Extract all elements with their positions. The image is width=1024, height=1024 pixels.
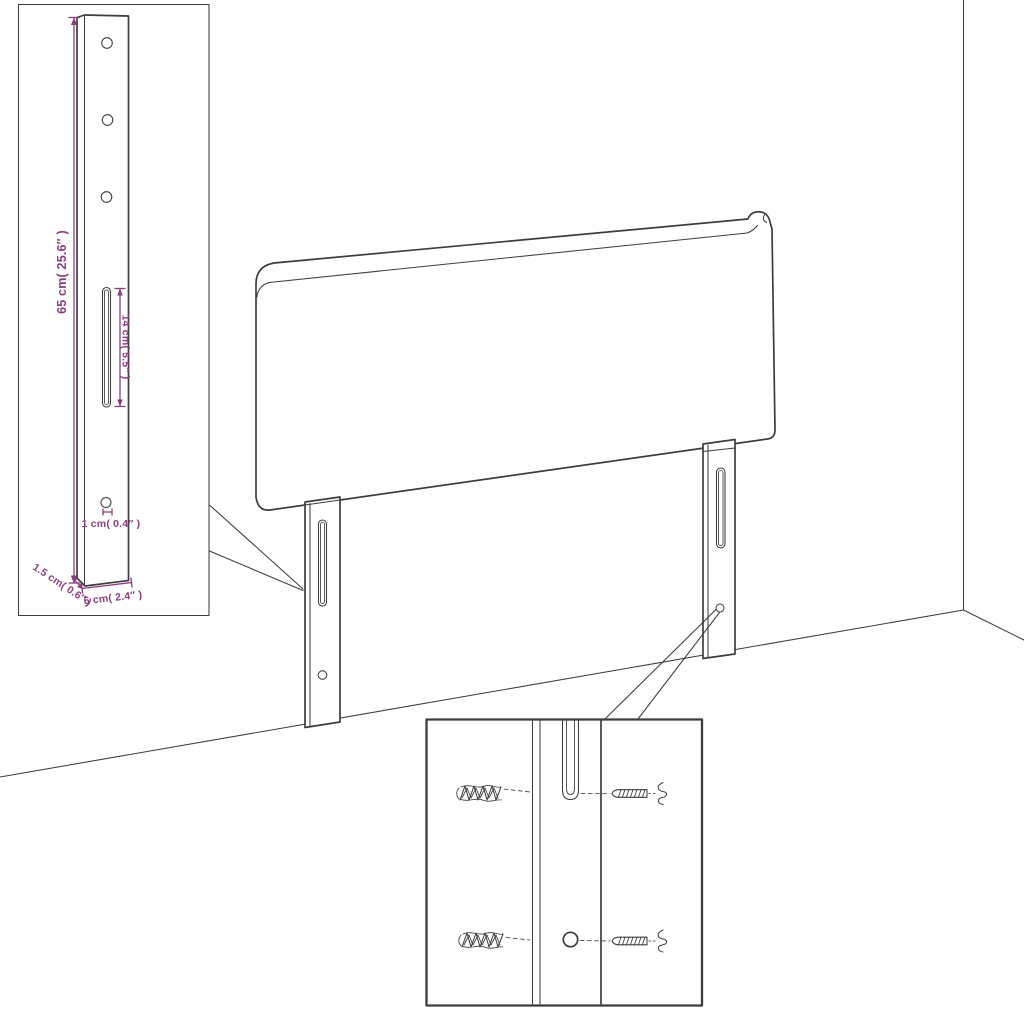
screw-inset-frame (427, 720, 703, 1006)
bracket-callout-line-upper (210, 505, 304, 589)
dimension-label-bracket-height: 65 cm( 25.6″ ) (55, 230, 69, 314)
bracket-callout-line-lower (210, 551, 304, 591)
right-leg (703, 440, 735, 659)
screw-detail-inset (427, 720, 703, 1006)
screw-callout-line-right (638, 613, 720, 720)
left-leg (305, 497, 340, 728)
wall-floor-right-line (964, 610, 1024, 640)
bracket-detail-inset: 65 cm( 25.6″ ) 14 cm( 5.5″ ) 1 cm( 0.4″ … (19, 5, 210, 616)
screw-callout-line-left (605, 610, 716, 720)
headboard (256, 212, 775, 510)
bracket-inset-callout (210, 505, 304, 591)
dimension-label-slot-length: 14 cm( 5.5″ ) (120, 315, 132, 380)
dimension-label-hole-size: 1 cm( 0.4″ ) (82, 518, 141, 530)
product-dimension-diagram: 65 cm( 25.6″ ) 14 cm( 5.5″ ) 1 cm( 0.4″ … (0, 0, 1024, 1024)
diagram-canvas: 65 cm( 25.6″ ) 14 cm( 5.5″ ) 1 cm( 0.4″ … (0, 0, 1024, 1024)
